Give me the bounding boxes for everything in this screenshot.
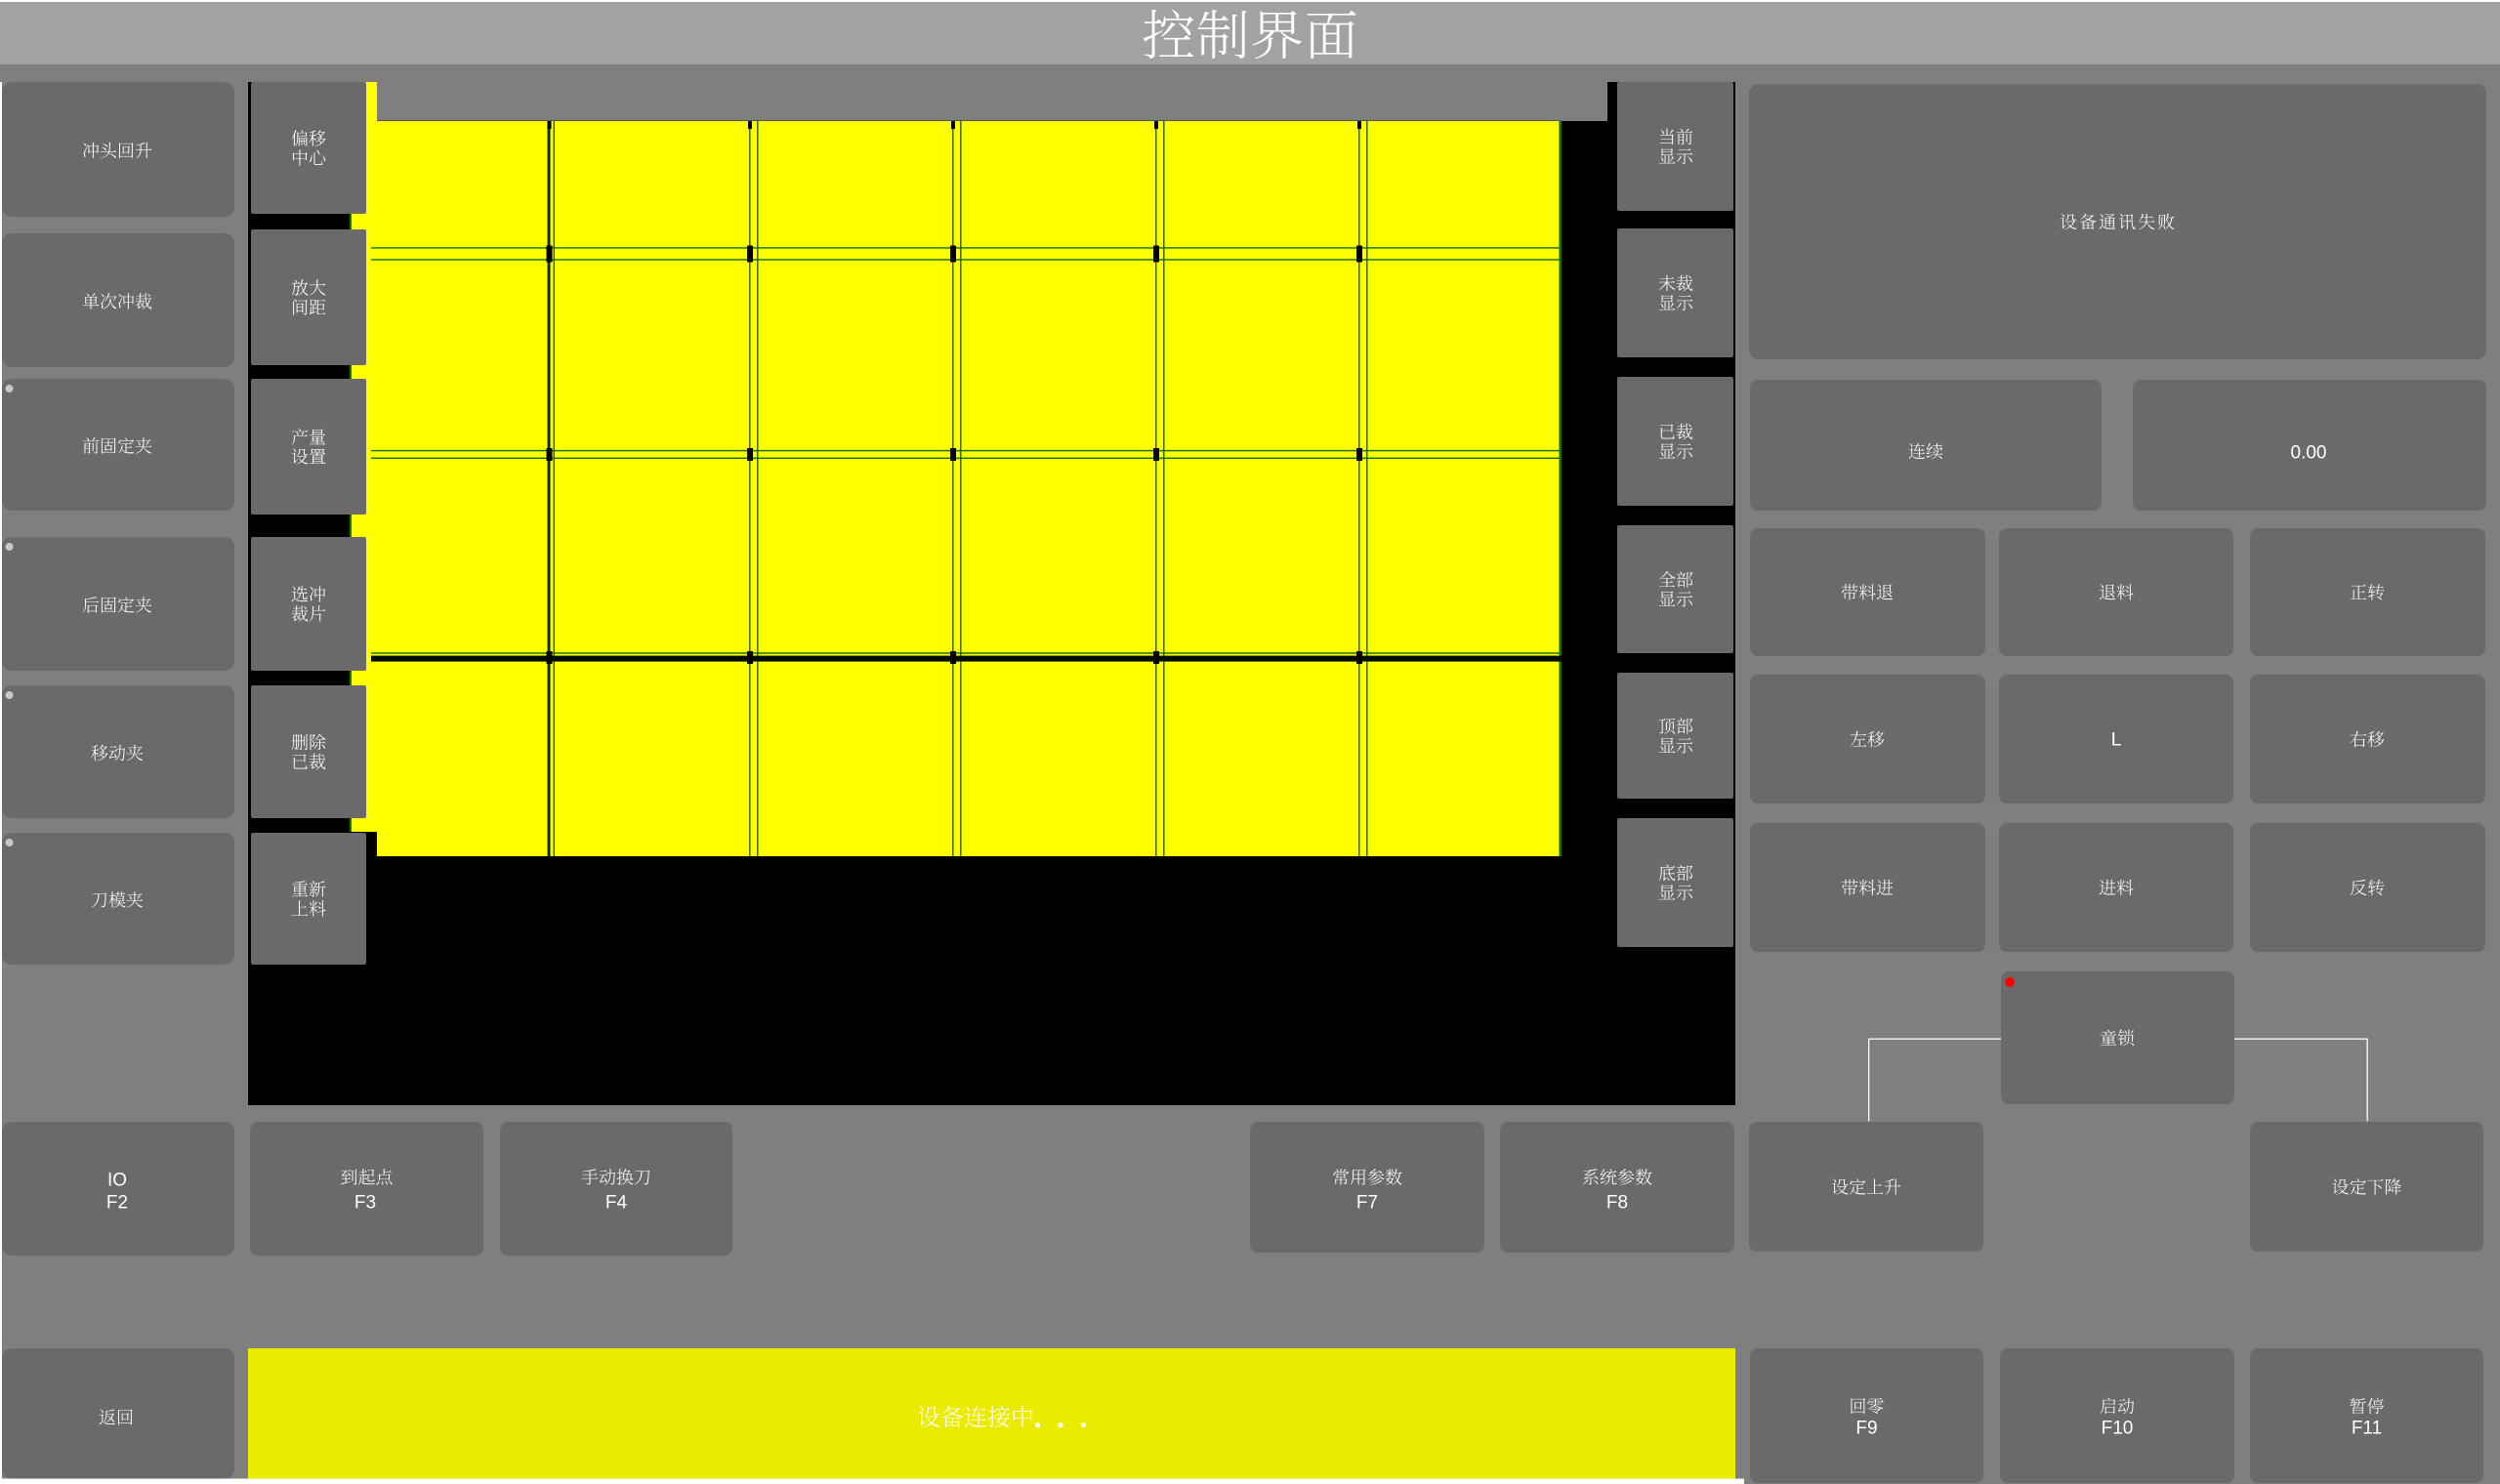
svg-text:F8: F8 (1606, 1193, 1628, 1214)
svg-text:F7: F7 (1356, 1193, 1378, 1214)
svg-text:F2: F2 (106, 1193, 128, 1214)
svg-text:L: L (2111, 730, 2122, 751)
svg-text:F10: F10 (2102, 1419, 2134, 1439)
svg-text:IO: IO (107, 1171, 127, 1191)
svg-text:F4: F4 (605, 1193, 628, 1214)
svg-text:F11: F11 (2352, 1419, 2382, 1439)
svg-text:0.00: 0.00 (2291, 443, 2327, 464)
svg-text:F9: F9 (1855, 1419, 1877, 1439)
svg-text:F3: F3 (354, 1193, 376, 1214)
